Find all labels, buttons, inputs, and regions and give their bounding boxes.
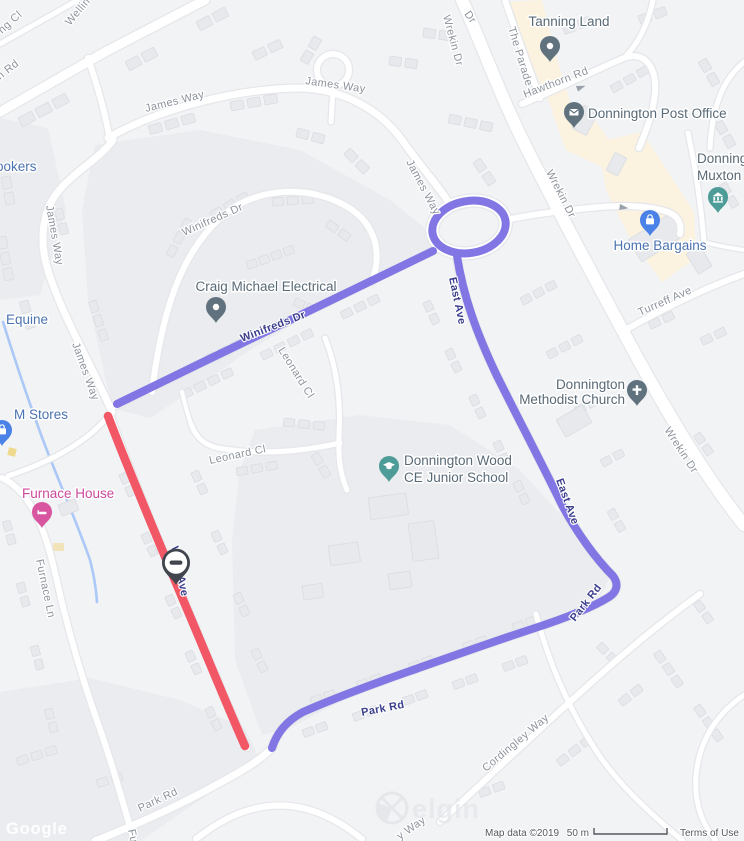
poi-label[interactable]: Donnington Wood	[404, 453, 512, 468]
envelope-icon	[570, 109, 579, 116]
bag-body	[646, 218, 654, 224]
building	[408, 520, 439, 561]
bed-mattress	[39, 512, 46, 515]
dot-icon	[213, 304, 219, 310]
dot-icon	[213, 304, 219, 310]
road	[331, 90, 333, 122]
building	[405, 58, 418, 69]
poi-label[interactable]: Muxton	[697, 168, 741, 183]
poi-label[interactable]: Donning	[697, 151, 744, 166]
building	[302, 583, 324, 600]
bed-headboard	[38, 510, 40, 514]
terms-of-use-link[interactable]: Terms of Use	[680, 828, 739, 839]
poi-label[interactable]: Donnington	[556, 377, 625, 392]
building	[389, 56, 402, 67]
street-label: Fu	[125, 828, 140, 841]
building-strip	[368, 493, 409, 520]
building	[1, 176, 12, 189]
poi-ookers[interactable]: ookers	[0, 159, 37, 174]
cap-base	[386, 466, 391, 469]
poi-label[interactable]: ookers	[0, 159, 37, 174]
building	[0, 252, 11, 265]
dot-icon	[547, 43, 553, 49]
poi-label[interactable]: Home Bargains	[613, 238, 706, 253]
building	[479, 121, 493, 132]
building	[298, 420, 310, 429]
map-canvas[interactable]: ng Cln RdWellinJames WayJames WayJames W…	[0, 0, 744, 841]
building	[388, 571, 412, 590]
bag-body	[0, 428, 6, 434]
dot-icon	[547, 43, 553, 49]
building	[266, 461, 278, 471]
building	[448, 114, 462, 125]
building	[263, 94, 277, 105]
building	[3, 268, 14, 281]
poi-label[interactable]: Furnace House	[22, 486, 114, 501]
poi-label[interactable]: M Stores	[14, 407, 68, 422]
poi-label[interactable]: Donnington Post Office	[588, 106, 727, 121]
building	[236, 466, 248, 476]
poi-label[interactable]: Methodist Church	[519, 392, 625, 407]
poi-label[interactable]: CE Junior School	[404, 470, 508, 485]
building	[328, 542, 360, 566]
building	[251, 463, 263, 473]
building	[368, 493, 409, 520]
building	[287, 196, 299, 205]
building	[283, 418, 295, 427]
building-strip	[388, 571, 412, 590]
building	[272, 197, 284, 206]
building-strip	[328, 542, 360, 566]
building	[423, 28, 436, 39]
poi-label[interactable]: Craig Michael Electrical	[195, 279, 336, 294]
small-landmark	[53, 543, 64, 551]
elgin-watermark-text: elgin	[412, 794, 480, 824]
building	[464, 117, 478, 128]
poi-label[interactable]: Tanning Land	[528, 14, 609, 29]
building	[247, 97, 261, 108]
map-viewport[interactable]: ng Cln RdWellinJames WayJames WayJames W…	[0, 0, 744, 841]
building	[4, 192, 15, 205]
poi-label[interactable]: Equine	[6, 312, 48, 327]
building-strip	[408, 520, 439, 561]
poi-equine[interactable]: Equine	[6, 312, 48, 327]
no-entry-bar	[170, 561, 183, 565]
building	[230, 100, 244, 111]
scale-label: 50 m	[567, 828, 589, 839]
building	[313, 421, 325, 430]
building-strip	[302, 583, 324, 600]
map-data-attribution: Map data ©2019	[485, 828, 560, 839]
google-logo[interactable]: Google	[6, 820, 68, 838]
